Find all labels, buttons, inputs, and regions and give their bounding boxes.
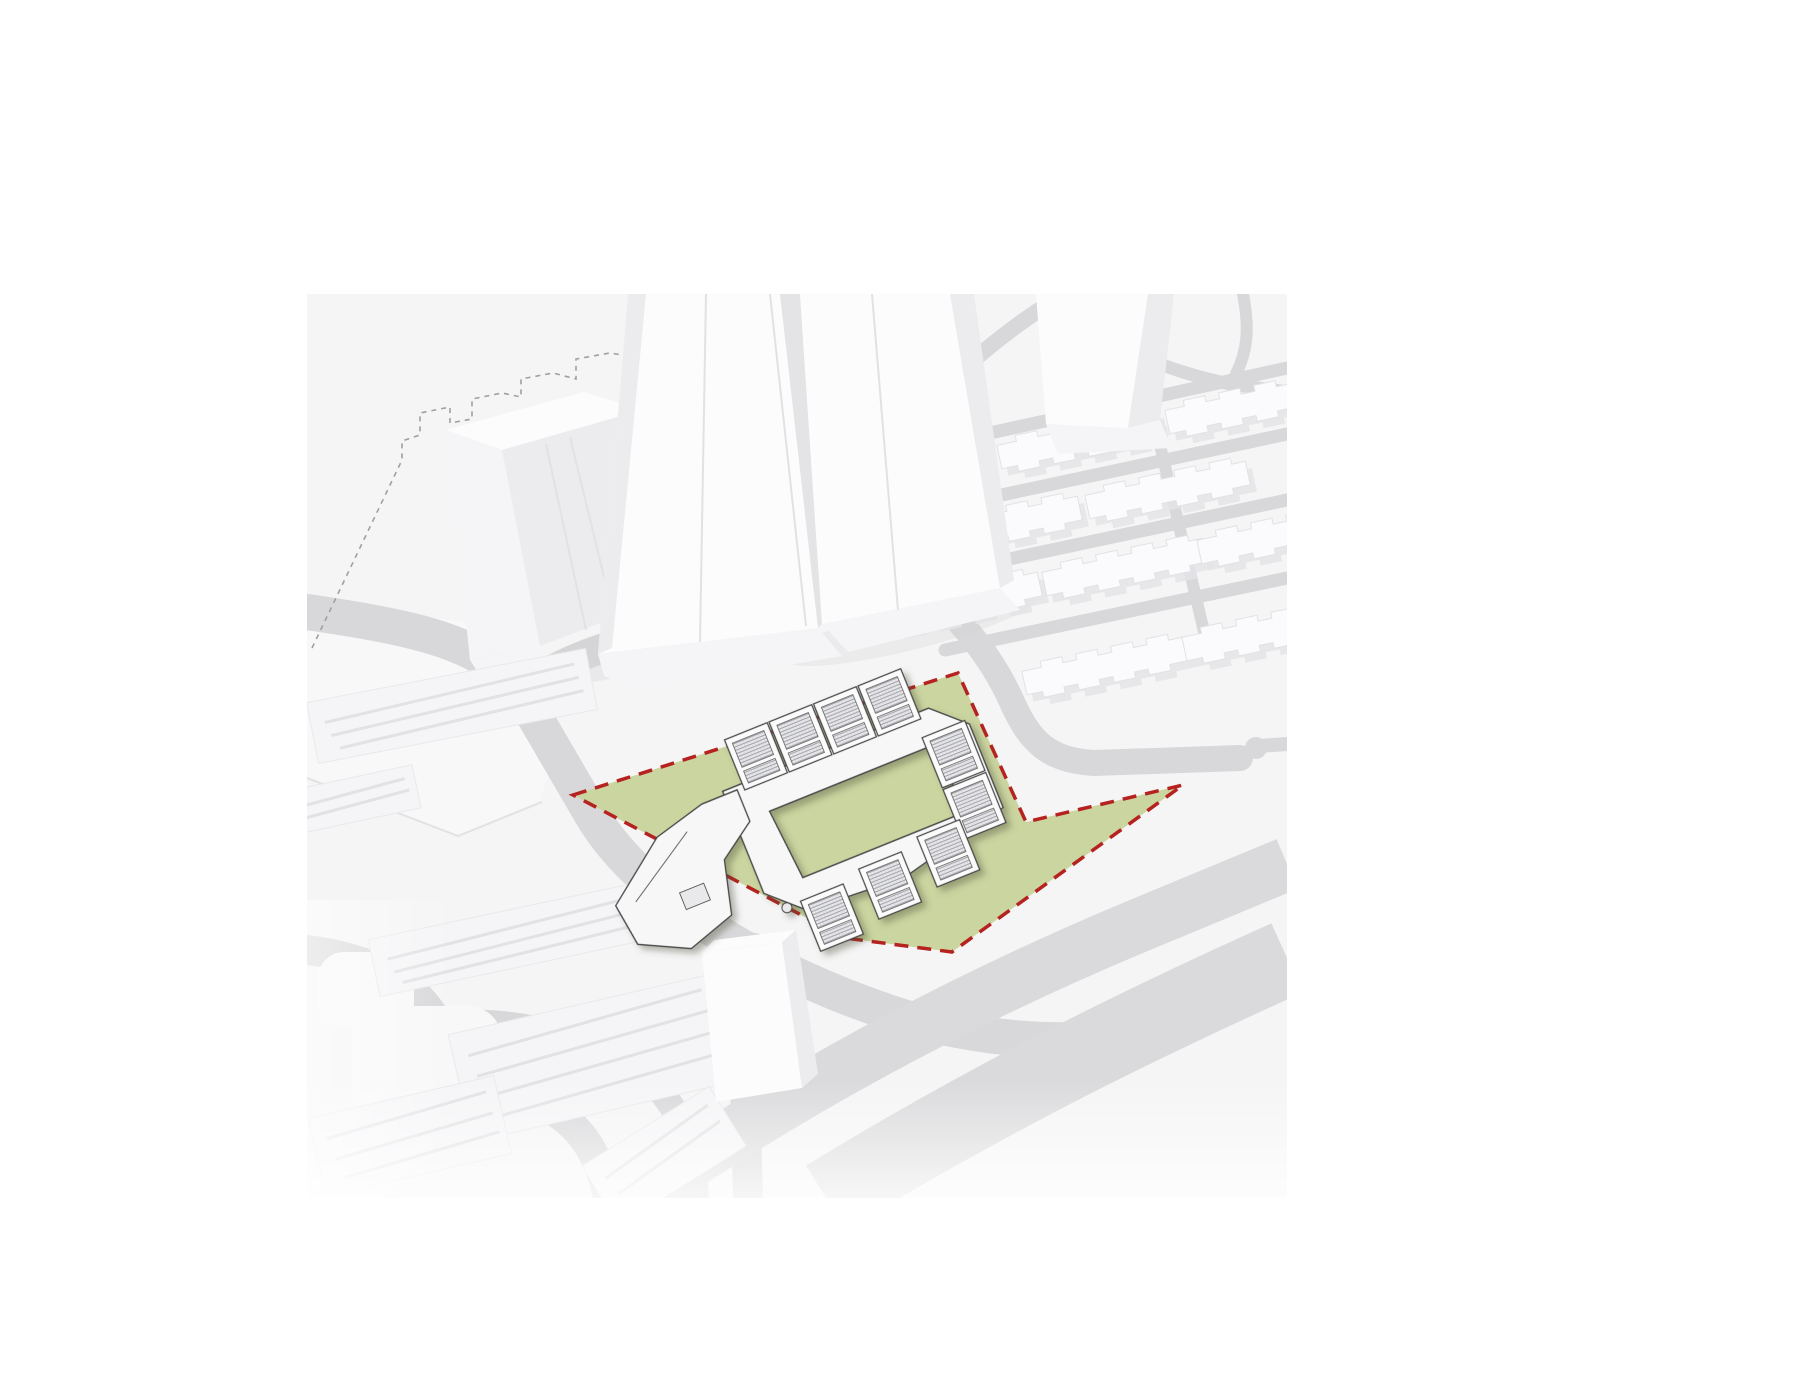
site-plan-rendering (0, 0, 1800, 1400)
rendering-canvas (0, 0, 1800, 1400)
culdesac-circle (1245, 737, 1267, 759)
right-tower (1036, 294, 1174, 454)
left-fade (307, 900, 457, 1198)
